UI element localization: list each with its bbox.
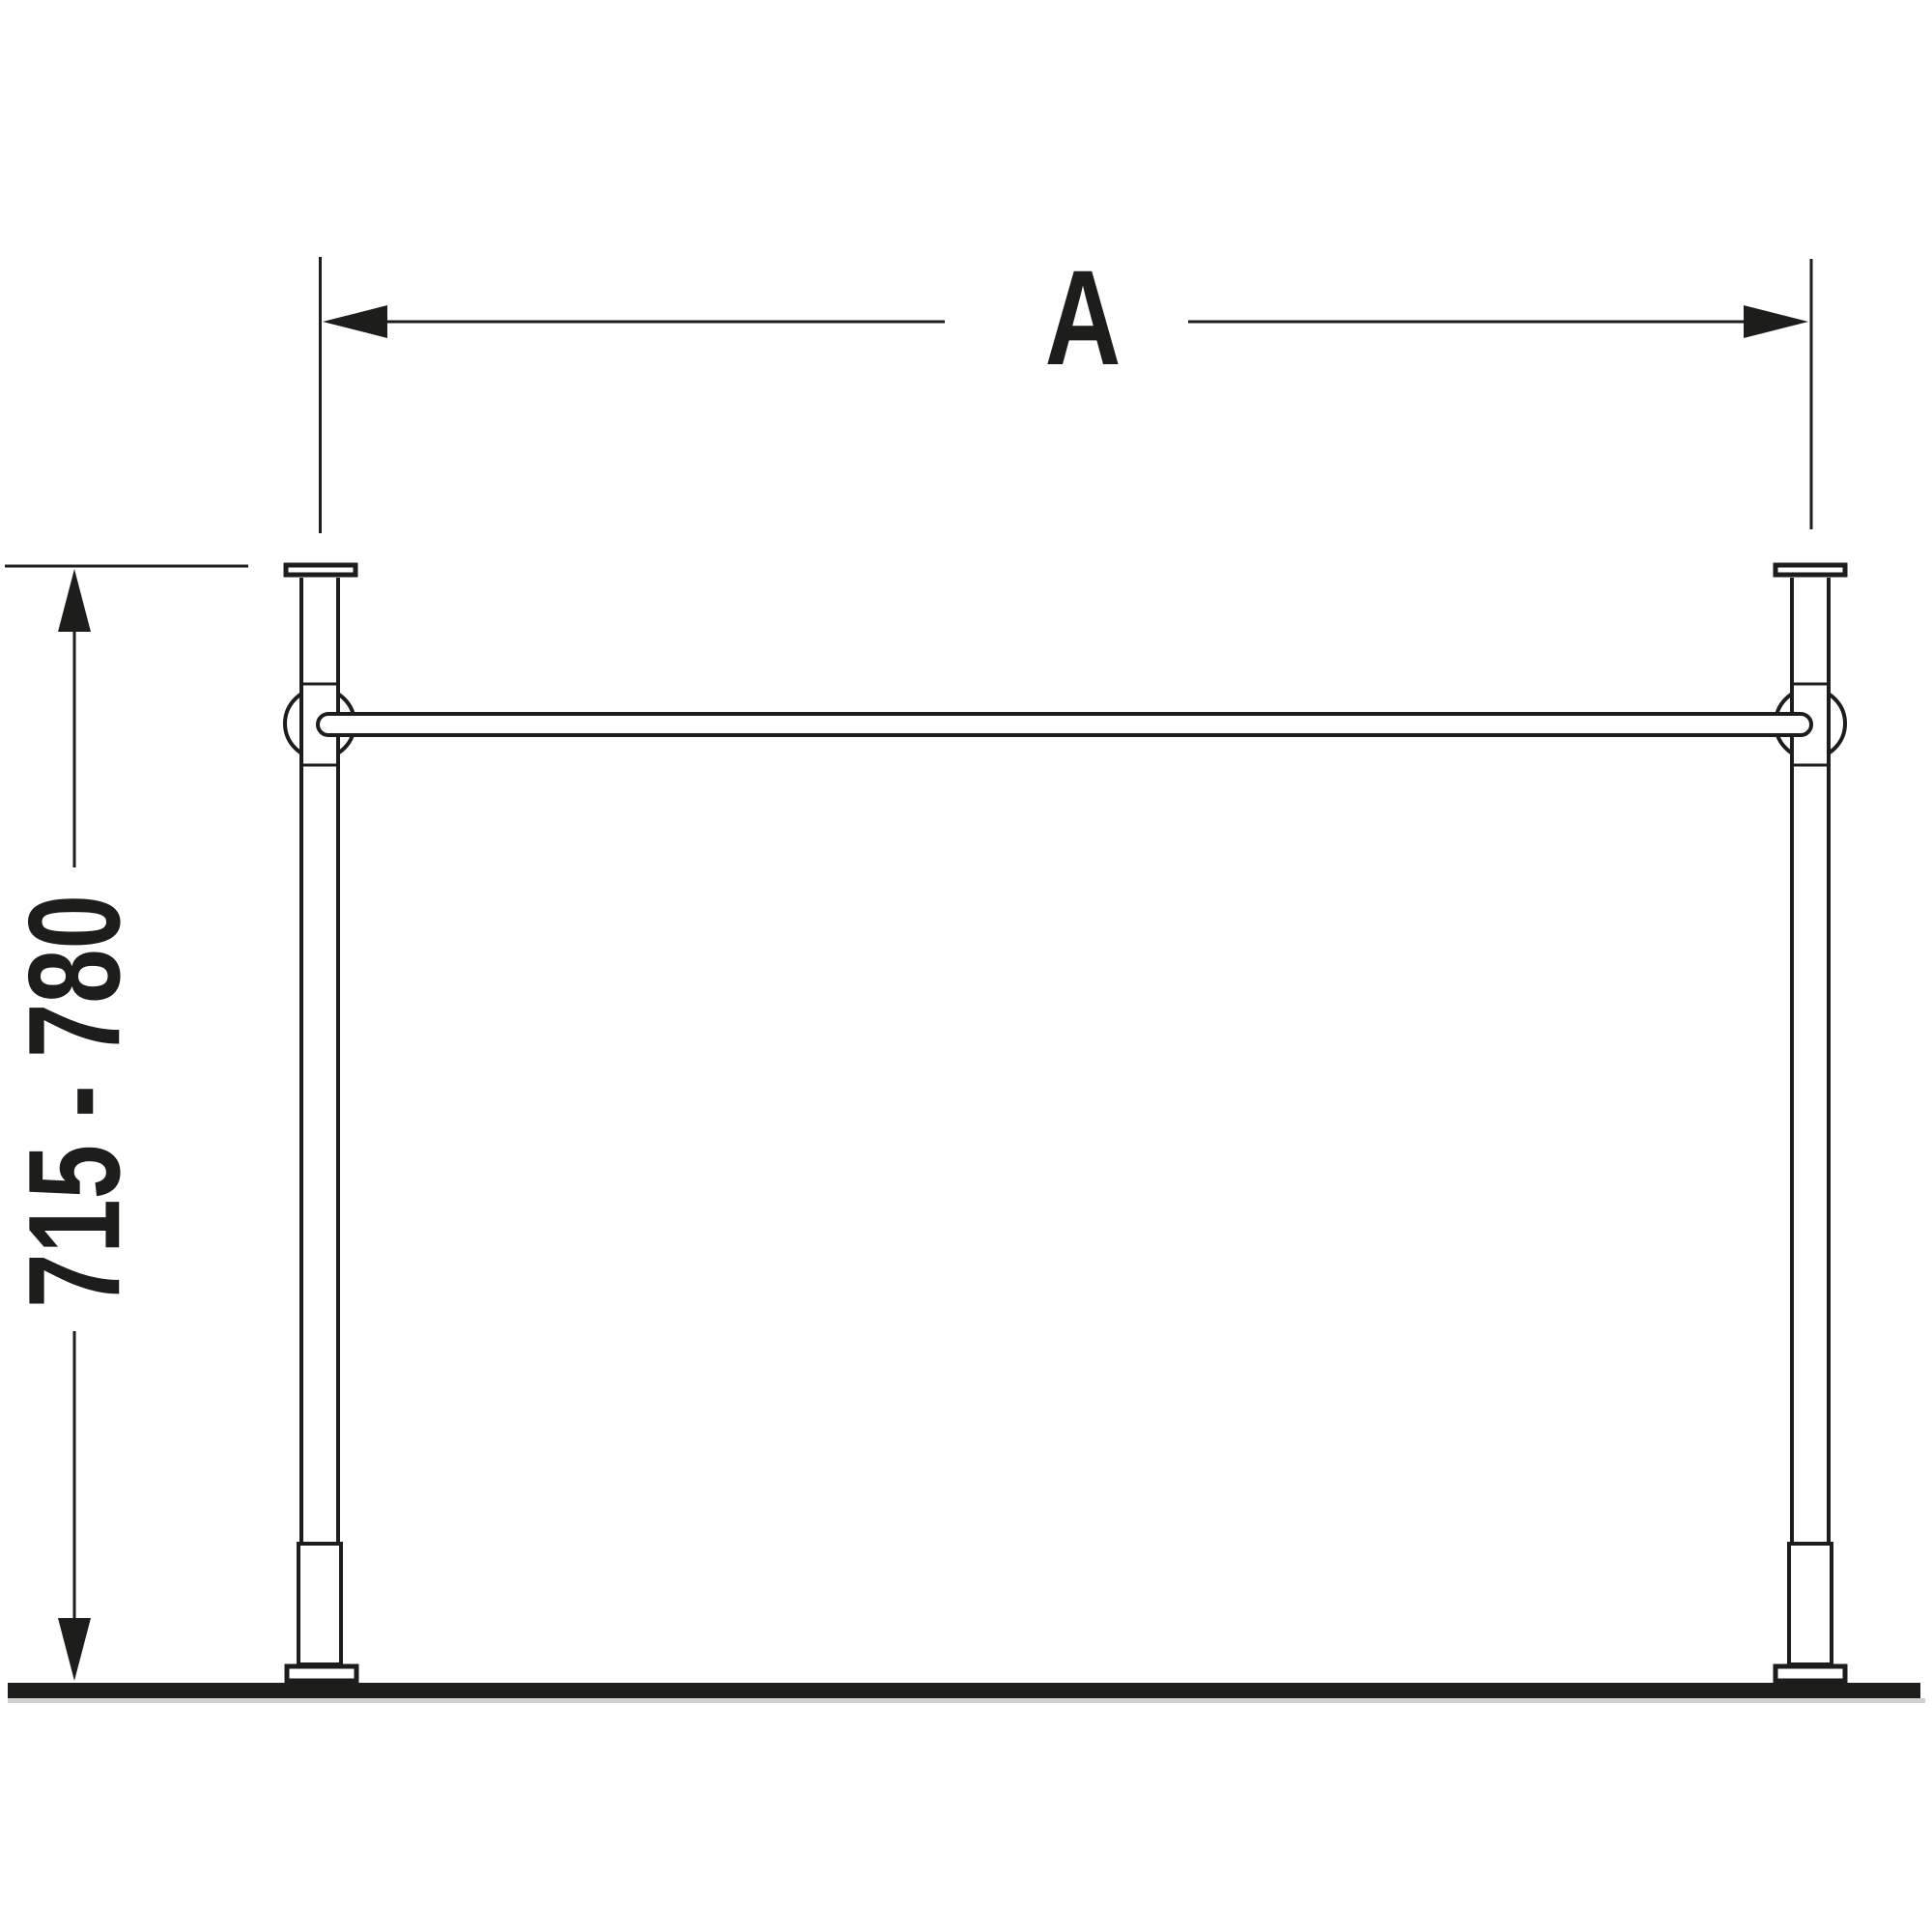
right-leg-top-flange bbox=[1776, 565, 1845, 575]
height-dimension: 715 - 780 bbox=[2, 566, 248, 1681]
width-dimension: A bbox=[321, 241, 1812, 533]
console-stand-dimension-drawing: A 715 - 780 bbox=[0, 0, 1932, 1932]
right-foot-sleeve bbox=[1789, 1544, 1832, 1664]
floor-shadow bbox=[8, 1698, 1925, 1703]
height-dimension-label: 715 - 780 bbox=[2, 895, 147, 1308]
right-foot-plate bbox=[1776, 1666, 1845, 1681]
technical-drawing-canvas: A 715 - 780 bbox=[0, 0, 1932, 1932]
left-leg-top-flange bbox=[286, 565, 355, 575]
left-foot-sleeve bbox=[298, 1544, 341, 1664]
height-dimension-up-arrowhead-icon bbox=[58, 569, 91, 632]
height-dimension-down-arrowhead-icon bbox=[58, 1618, 91, 1681]
floor-line bbox=[8, 1683, 1920, 1698]
width-dimension-left-arrowhead-icon bbox=[323, 305, 387, 338]
left-foot-plate bbox=[287, 1666, 356, 1681]
stand-structure bbox=[8, 565, 1925, 1703]
width-dimension-label: A bbox=[1045, 241, 1122, 393]
crossbar-tube bbox=[318, 714, 1811, 735]
width-dimension-right-arrowhead-icon bbox=[1744, 305, 1808, 338]
